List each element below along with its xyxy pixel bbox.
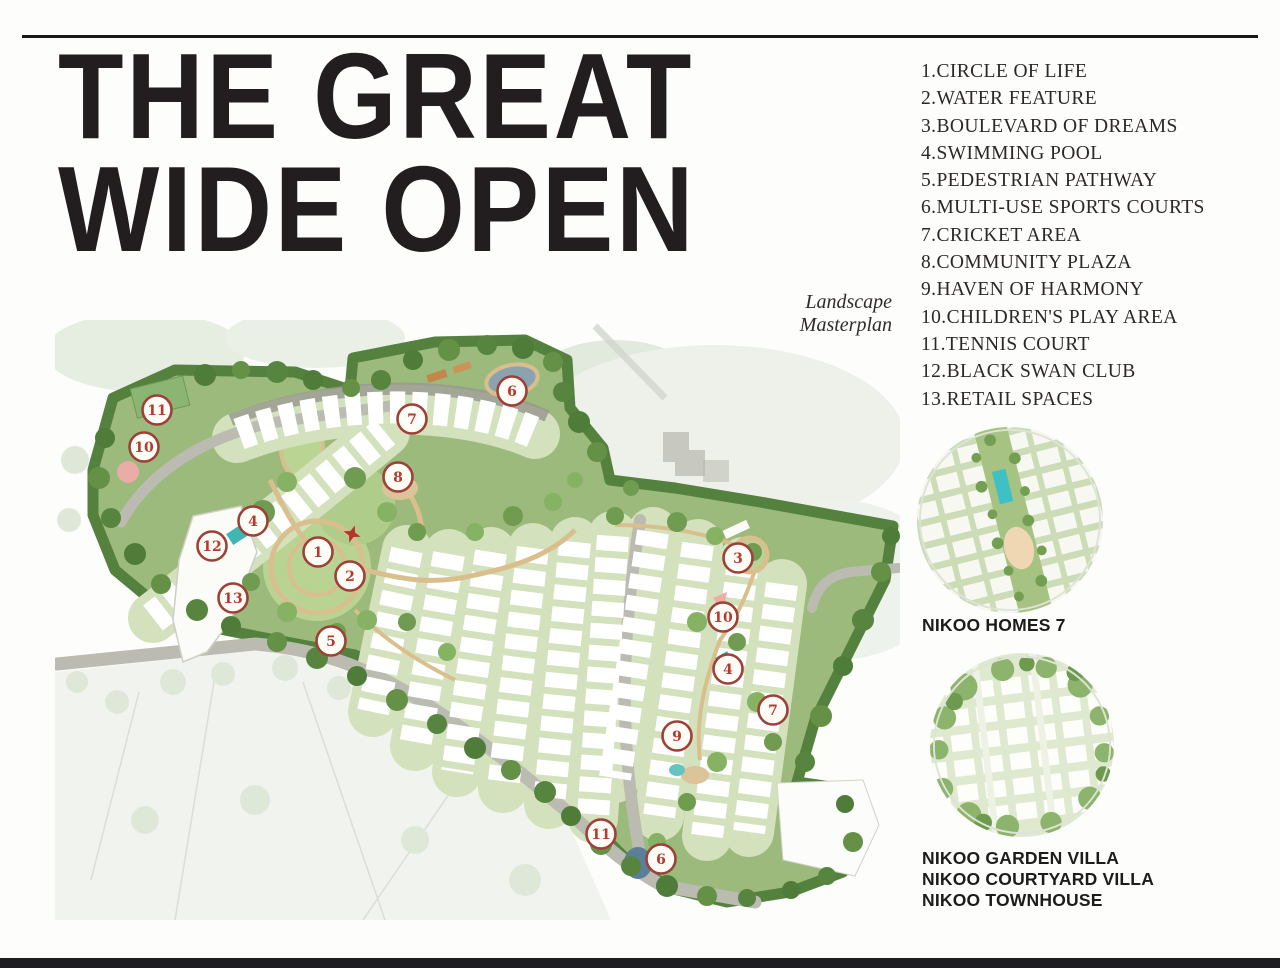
bottom-divider <box>0 958 1280 968</box>
nikoo-villas-labels: NIKOO GARDEN VILLA NIKOO COURTYARD VILLA… <box>922 848 1154 911</box>
svg-text:9: 9 <box>672 729 682 745</box>
svg-text:12: 12 <box>202 539 221 555</box>
play-area-shape <box>117 461 139 483</box>
svg-text:7: 7 <box>768 703 778 719</box>
legend-item: 5.PEDESTRIAN PATHWAY <box>921 167 1205 194</box>
legend-item: 1.CIRCLE OF LIFE <box>921 58 1205 85</box>
villa-label-2: NIKOO COURTYARD VILLA <box>922 869 1154 890</box>
landscape-masterplan-map: 111078641212135310479116 <box>55 320 900 920</box>
title-line-2: WIDE OPEN <box>58 153 696 266</box>
legend-item: 6.MULTI-USE SPORTS COURTS <box>921 194 1205 221</box>
villa-label-3: NIKOO TOWNHOUSE <box>922 890 1154 911</box>
legend-item: 3.BOULEVARD OF DREAMS <box>921 113 1205 140</box>
nikoo-homes-7-inset <box>917 427 1103 613</box>
svg-text:1: 1 <box>313 545 323 561</box>
svg-text:4: 4 <box>723 662 733 678</box>
svg-text:7: 7 <box>407 412 417 428</box>
nikoo-villas-inset <box>930 653 1114 837</box>
svg-text:6: 6 <box>656 852 666 868</box>
villa-label-1: NIKOO GARDEN VILLA <box>922 848 1154 869</box>
svg-text:5: 5 <box>326 634 336 650</box>
svg-text:8: 8 <box>393 470 403 486</box>
nikoo-homes-7-label: NIKOO HOMES 7 <box>922 615 1066 636</box>
svg-text:11: 11 <box>147 403 166 419</box>
svg-text:10: 10 <box>713 610 733 626</box>
open-plot-shape <box>777 780 879 876</box>
legend-item: 7.CRICKET AREA <box>921 222 1205 249</box>
legend-item: 12.BLACK SWAN CLUB <box>921 358 1205 385</box>
svg-text:4: 4 <box>248 514 258 530</box>
title-line-1: THE GREAT <box>58 40 696 153</box>
svg-text:11: 11 <box>591 827 610 843</box>
svg-text:13: 13 <box>223 591 242 607</box>
legend-item: 2.WATER FEATURE <box>921 85 1205 112</box>
legend-item: 10.CHILDREN'S PLAY AREA <box>921 304 1205 331</box>
masterplan-svg: 111078641212135310479116 <box>55 320 900 920</box>
brochure-page: THE GREAT WIDE OPEN Landscape Masterplan… <box>0 0 1280 968</box>
legend-item: 8.COMMUNITY PLAZA <box>921 249 1205 276</box>
svg-text:2: 2 <box>345 569 355 585</box>
legend-item: 11.TENNIS COURT <box>921 331 1205 358</box>
svg-text:3: 3 <box>733 551 743 567</box>
legend-item: 13.RETAIL SPACES <box>921 386 1205 413</box>
legend-item: 9.HAVEN OF HARMONY <box>921 276 1205 303</box>
page-title: THE GREAT WIDE OPEN <box>58 40 696 266</box>
svg-text:6: 6 <box>507 384 517 400</box>
svg-text:10: 10 <box>134 440 154 456</box>
legend-item: 4.SWIMMING POOL <box>921 140 1205 167</box>
legend-list: 1.CIRCLE OF LIFE2.WATER FEATURE3.BOULEVA… <box>921 58 1205 413</box>
